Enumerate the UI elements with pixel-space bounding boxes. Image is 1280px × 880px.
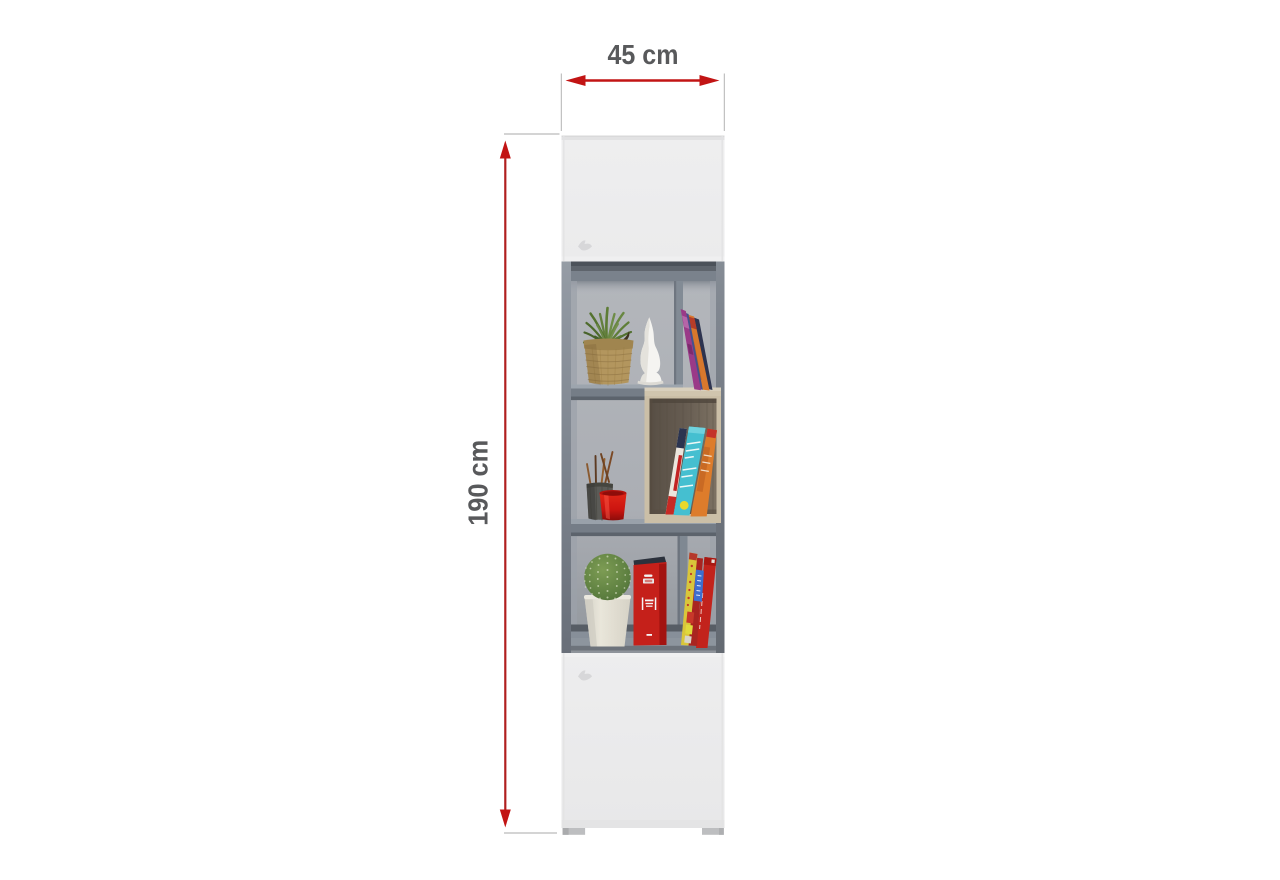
svg-text:45 cm: 45 cm (608, 39, 679, 70)
svg-text:190 cm: 190 cm (463, 440, 494, 526)
